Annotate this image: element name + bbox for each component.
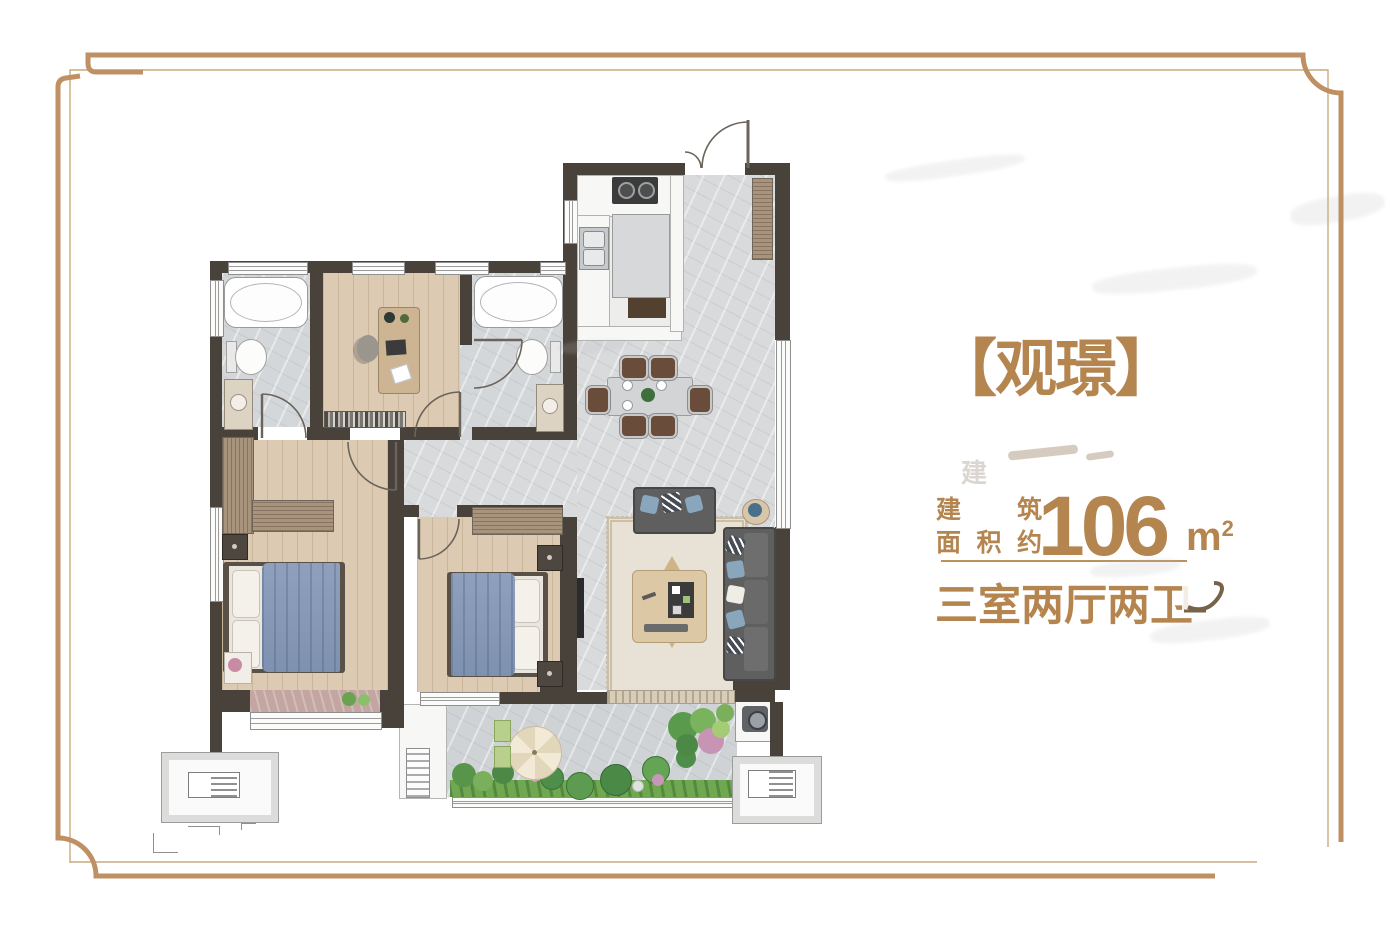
- layout-type-text: 三室两厅两卫: [935, 571, 1193, 633]
- door-arcs: [0, 0, 1400, 933]
- floorplan-page: { "title": "【观璟】", "watermark_ghost": "建…: [0, 0, 1400, 933]
- entry-door-arc: [702, 122, 748, 168]
- floor-plan: [0, 0, 1400, 933]
- area-prefix-line1: 建 筑: [936, 494, 1042, 527]
- bathroom1-door-arc: [262, 394, 306, 438]
- plan-title: 【观璟】: [935, 328, 1265, 412]
- watermark-ghost-char: 建: [961, 453, 987, 490]
- entry-small-door-arc: [685, 152, 701, 168]
- area-prefix: 建 筑 面积约: [936, 494, 1042, 560]
- bedroom2-door-arc: [419, 519, 459, 559]
- bedroom1-door-arc: [348, 442, 396, 490]
- area-unit: m2: [1186, 515, 1234, 560]
- study-door-arc: [415, 392, 460, 437]
- bathroom2-door-arc: [474, 340, 522, 388]
- area-prefix-line2: 面积约: [936, 527, 1042, 560]
